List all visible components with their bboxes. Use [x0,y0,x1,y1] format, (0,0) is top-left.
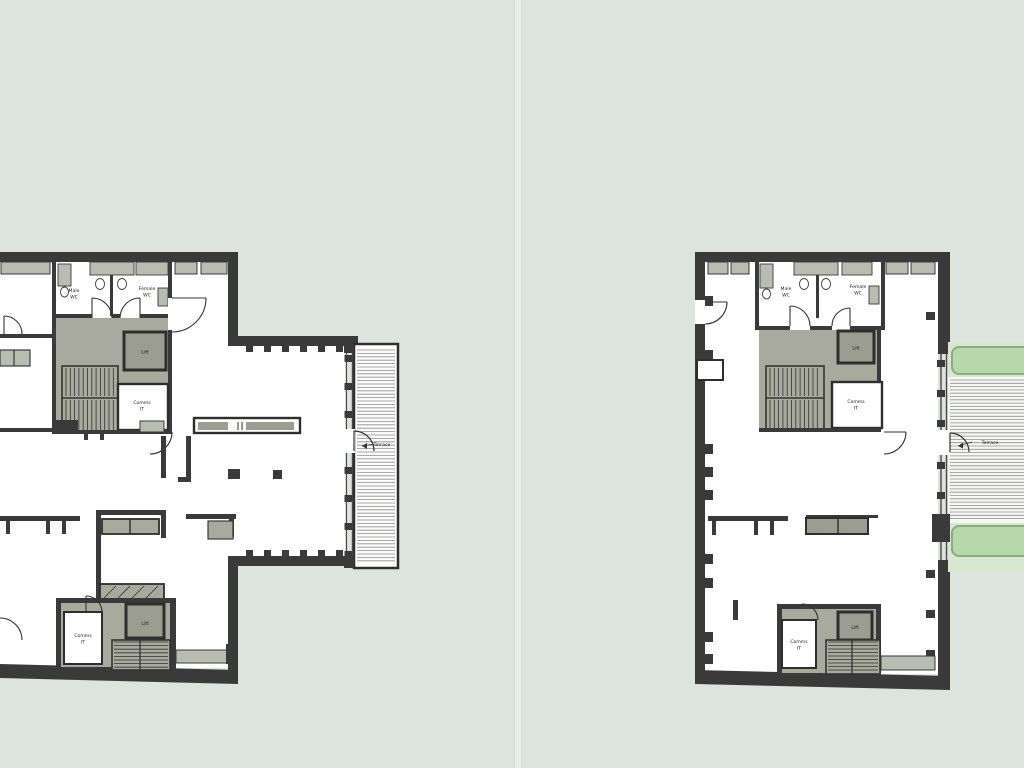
comms-label: IT [854,406,858,412]
comms-label: IT [81,640,85,646]
female-wc-label: WC [143,293,151,299]
left-wing-slab [228,346,348,558]
left-column [228,469,240,479]
left-floor-plan: Terrace [0,252,398,684]
lift-label: Lift [141,621,148,627]
terrace-label: Terrace [373,442,391,448]
terrace-label: Terrace [981,440,999,446]
male-wc-label: Male [69,288,80,294]
right-left-wall-box [697,360,723,380]
comms-label: IT [140,407,144,413]
left-column [273,470,282,479]
female-wc-label: WC [854,291,862,297]
comms-label: Comms [790,639,808,645]
floor-plans-drawing: Terrace [0,0,1024,768]
lift-label: Lift [851,625,858,631]
page-background: Terrace [0,0,1024,768]
left-lower-stair [112,640,170,670]
comms-label: Comms [74,633,92,639]
left-lower-lift [126,604,164,638]
male-wc-label: WC [782,293,790,299]
female-wc-label: Female [139,286,156,292]
right-upper-comms-room [832,382,882,428]
right-terrace-planter-bottom [952,526,1024,556]
right-floor-plan: Terrace [695,252,1024,690]
lift-label: Lift [141,350,148,356]
comms-label: IT [797,646,801,652]
lift-label: Lift [852,346,859,352]
comms-label: Comms [133,400,151,406]
right-left-wall-columns [705,444,713,500]
right-wall-chunk [932,514,950,542]
right-terrace-planter-top [952,347,1024,374]
right-terrace: Terrace [948,342,1024,572]
comms-label: Comms [847,399,865,405]
right-counter [806,518,868,534]
female-wc-label: Female [850,284,867,290]
male-wc-label: WC [70,295,78,301]
left-reception-counter [194,418,300,433]
male-wc-label: Male [781,286,792,292]
right-terrace-deck [948,377,1024,523]
